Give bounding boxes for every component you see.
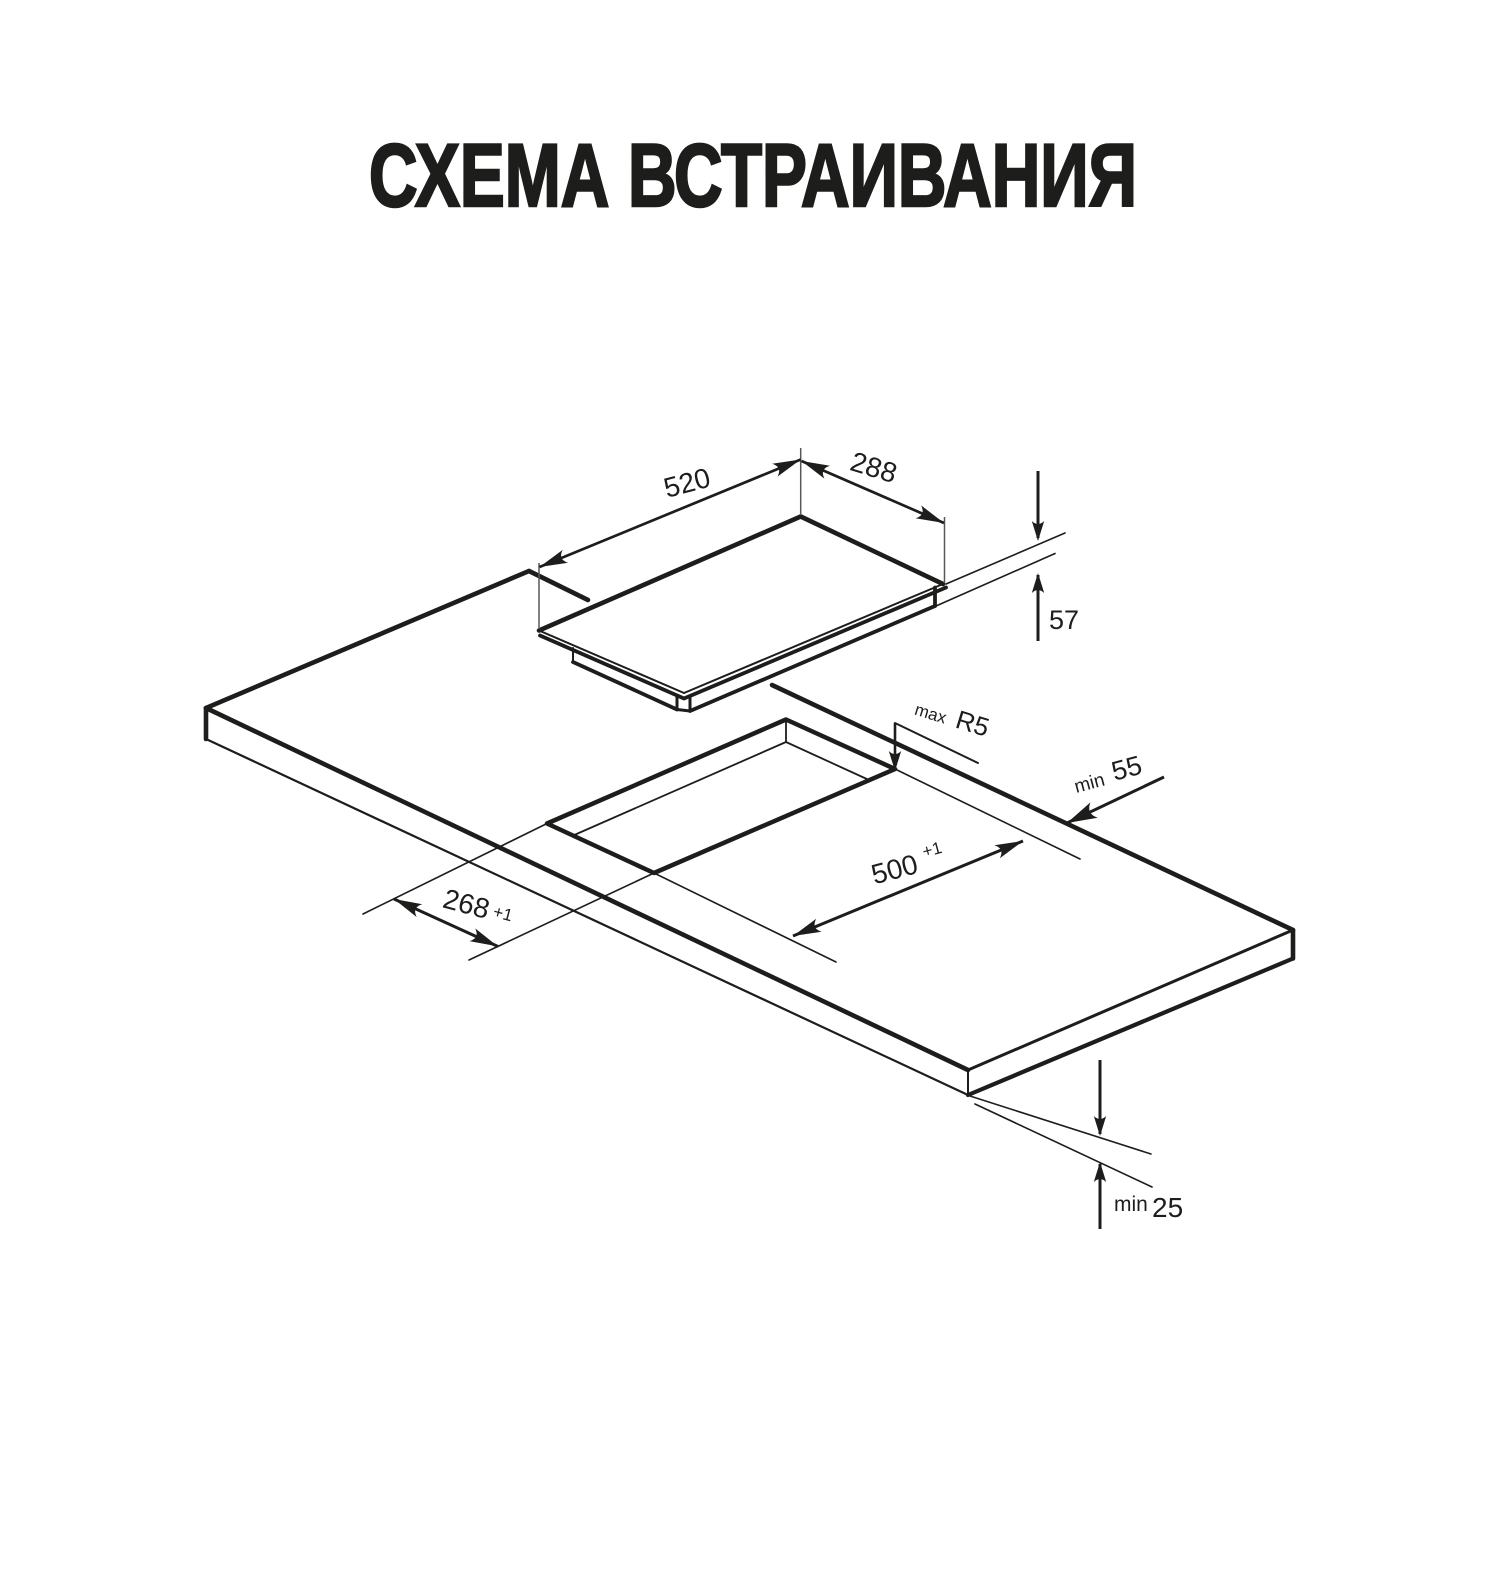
svg-text:25: 25 bbox=[1152, 1192, 1183, 1223]
svg-text:57: 57 bbox=[1049, 605, 1079, 635]
svg-text:СХЕМА ВСТРАИВАНИЯ: СХЕМА ВСТРАИВАНИЯ bbox=[369, 125, 1137, 225]
svg-text:min: min bbox=[1114, 1193, 1148, 1216]
